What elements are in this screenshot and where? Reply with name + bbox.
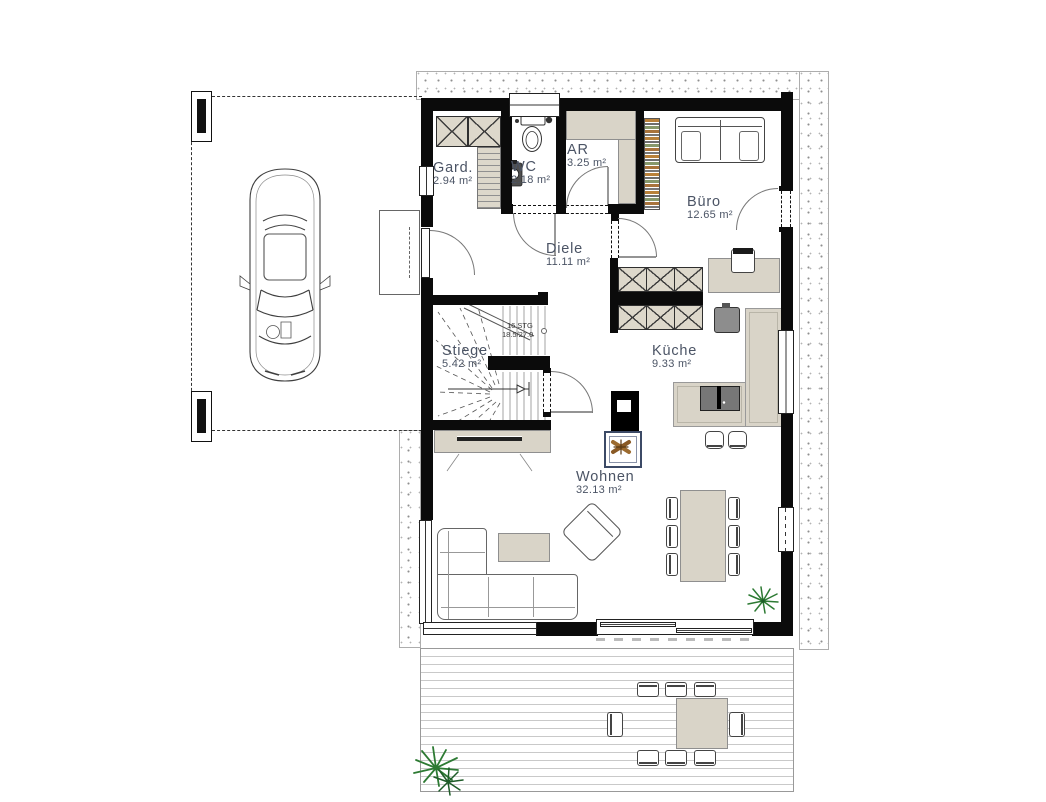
kueche-closet-cell: [646, 267, 675, 292]
wall-wc-ar: [556, 110, 566, 204]
room-label-ar: AR 3.25 m²: [567, 143, 606, 169]
wall-ar-buero: [636, 110, 644, 204]
armchair: [561, 501, 623, 563]
wall-right-1: [781, 92, 793, 188]
wall-kitchen-west: [610, 258, 618, 333]
kueche-sink: [714, 307, 740, 333]
gard-wardrobe-rack: [477, 147, 501, 209]
wall-left-3: [421, 278, 433, 520]
dining-chair: [666, 553, 678, 576]
dining-table: [680, 490, 726, 582]
dining-chair: [728, 497, 740, 520]
terrace-chair: [694, 682, 716, 697]
wall-left-2: [421, 196, 433, 227]
room-area: 2.18 m²: [511, 175, 550, 186]
gravel-strip-right: [799, 71, 829, 650]
wall-stair-mid: [488, 356, 550, 370]
wall-top-left: [421, 98, 511, 111]
sofa-seat-seam: [488, 577, 489, 617]
carport-post-core: [197, 99, 206, 133]
wall-right-3: [781, 414, 793, 507]
buero-bookshelf: [644, 118, 660, 210]
room-area: 32.13 m²: [576, 485, 635, 496]
gravel-strip-left: [399, 430, 421, 648]
armchair-back: [587, 506, 618, 537]
gard-closet-cell: [468, 116, 501, 147]
terrace-chair: [665, 750, 687, 766]
porch-dashed-line: [409, 227, 410, 278]
kueche-closet-cell: [618, 305, 647, 330]
room-area: 12.65 m²: [687, 210, 733, 221]
wall-bottom-2: [752, 622, 793, 636]
carport-post: [191, 391, 212, 442]
wall-right-2: [781, 228, 793, 330]
wall-stair-top: [433, 295, 548, 305]
terrace-chair: [729, 712, 745, 737]
floor-plan-canvas: Gard. 2.94 m² WC 2.18 m² AR 3.25 m² Büro…: [0, 0, 1046, 802]
gard-closet-cell: [436, 116, 468, 147]
kueche-closet-cell: [674, 305, 703, 330]
wall-post: [556, 204, 566, 214]
tv-sideboard: [434, 430, 551, 453]
terrace-chair: [694, 750, 716, 766]
window-gard: [419, 166, 434, 196]
terrace-dining-table: [676, 698, 728, 749]
room-area: 9.33 m²: [652, 359, 697, 370]
kueche-closet-cell: [618, 267, 647, 292]
kueche-closet-cell: [646, 305, 675, 330]
sofa-back-seam: [441, 607, 575, 608]
room-name: Küche: [652, 344, 697, 359]
corner-window-left: [419, 520, 432, 624]
carport-boundary-bottom: [212, 430, 422, 431]
kueche-stool: [705, 431, 724, 449]
indoor-plant: [748, 587, 778, 613]
gravel-strip-top: [416, 71, 829, 100]
room-name: Büro: [687, 195, 733, 210]
kueche-closet-cell: [674, 267, 703, 292]
dining-chair: [728, 525, 740, 548]
room-name: WC: [511, 160, 550, 175]
room-area: 5.42 m²: [442, 359, 488, 370]
ar-shelf-top: [566, 110, 636, 140]
terrace-chair: [607, 712, 623, 737]
window-wc: [509, 93, 560, 117]
sofa-base: [437, 574, 578, 620]
wall-stair-bottom: [433, 420, 551, 430]
counter-edge: [749, 312, 778, 423]
corner-window-bottom: [423, 622, 537, 635]
room-name: Gard.: [433, 161, 473, 176]
terrace-chair: [637, 682, 659, 697]
room-label-kueche: Küche 9.33 m²: [652, 344, 697, 370]
sliding-door: [596, 619, 754, 635]
tv-stand-lines: [447, 454, 532, 471]
carport-boundary-top: [212, 96, 422, 97]
stair-note: 16 STG 18.5/27.0: [502, 321, 533, 340]
room-label-wohnen: Wohnen 32.13 m²: [576, 470, 635, 496]
wall-bottom-1: [536, 622, 598, 636]
room-name: Wohnen: [576, 470, 635, 485]
room-area: 11.11 m²: [546, 257, 590, 268]
hob-divider: [717, 386, 721, 409]
sofa-seat-seam: [533, 577, 534, 617]
entrance-door-swing: [430, 230, 475, 275]
sink-faucet: [722, 303, 730, 308]
stair-door-swing: [551, 371, 593, 413]
stair-note-line1: 16 STG: [507, 321, 533, 330]
firewood-box: [604, 431, 642, 468]
toilet: [515, 116, 552, 152]
carport-post-core: [197, 399, 206, 433]
wall-post: [779, 227, 793, 232]
sofa-divider: [720, 120, 721, 160]
stair-note-line2: 18.5/27.0: [502, 330, 533, 339]
room-label-diele: Diele 11.11 m²: [546, 242, 590, 268]
carport-boundary-left: [191, 97, 192, 431]
wall-left-1: [421, 98, 433, 167]
door-opening-stair: [543, 373, 551, 412]
room-name: AR: [567, 143, 606, 158]
coffee-table: [498, 533, 550, 562]
dining-chair: [666, 525, 678, 548]
desk-chair-back: [733, 248, 753, 254]
room-area: 2.94 m²: [433, 176, 473, 187]
sofa-cushion: [739, 131, 759, 161]
wall-post: [501, 204, 513, 214]
room-name: Diele: [546, 242, 590, 257]
kueche-counter-east: [745, 308, 782, 427]
terrace-chair: [637, 750, 659, 766]
sofa-back-seam: [448, 531, 449, 619]
sliding-door-track: [596, 638, 754, 641]
ar-door-swing: [566, 166, 608, 208]
wall-top-right: [558, 98, 793, 111]
wall-gard-wc: [501, 110, 512, 204]
dining-chair: [728, 553, 740, 576]
window-kueche: [778, 330, 794, 414]
tv: [457, 436, 522, 441]
sofa-cushion: [681, 131, 701, 161]
sliding-door-panel: [600, 622, 676, 627]
sliding-door-panel: [676, 628, 752, 633]
carport-post: [191, 91, 212, 142]
sofa-seat-seam: [440, 552, 485, 553]
window-wohnen-east: [778, 507, 794, 552]
kueche-stool: [728, 431, 747, 449]
wall-post: [538, 292, 548, 305]
dining-chair: [666, 497, 678, 520]
buero-door-swing: [618, 218, 657, 257]
ar-shelf-right: [618, 139, 636, 204]
room-label-gard: Gard. 2.94 m²: [433, 161, 473, 187]
room-label-wc: WC 2.18 m²: [511, 160, 550, 186]
car-top-view: [240, 169, 330, 381]
terrace-chair: [665, 682, 687, 697]
entrance-door-leaf: [421, 228, 430, 278]
wall-post: [543, 412, 551, 417]
stove-opening: [617, 400, 631, 412]
room-label-stiege: Stiege 5.42 m²: [442, 344, 488, 370]
buero-sofa: [675, 117, 765, 163]
buero-ext-door-swing: [736, 188, 778, 230]
door-opening-buero-ext: [781, 191, 791, 227]
room-area: 3.25 m²: [567, 158, 606, 169]
entrance-porch: [379, 210, 420, 295]
wall-buero-kueche: [618, 292, 703, 305]
room-label-buero: Büro 12.65 m²: [687, 195, 733, 221]
room-name: Stiege: [442, 344, 488, 359]
